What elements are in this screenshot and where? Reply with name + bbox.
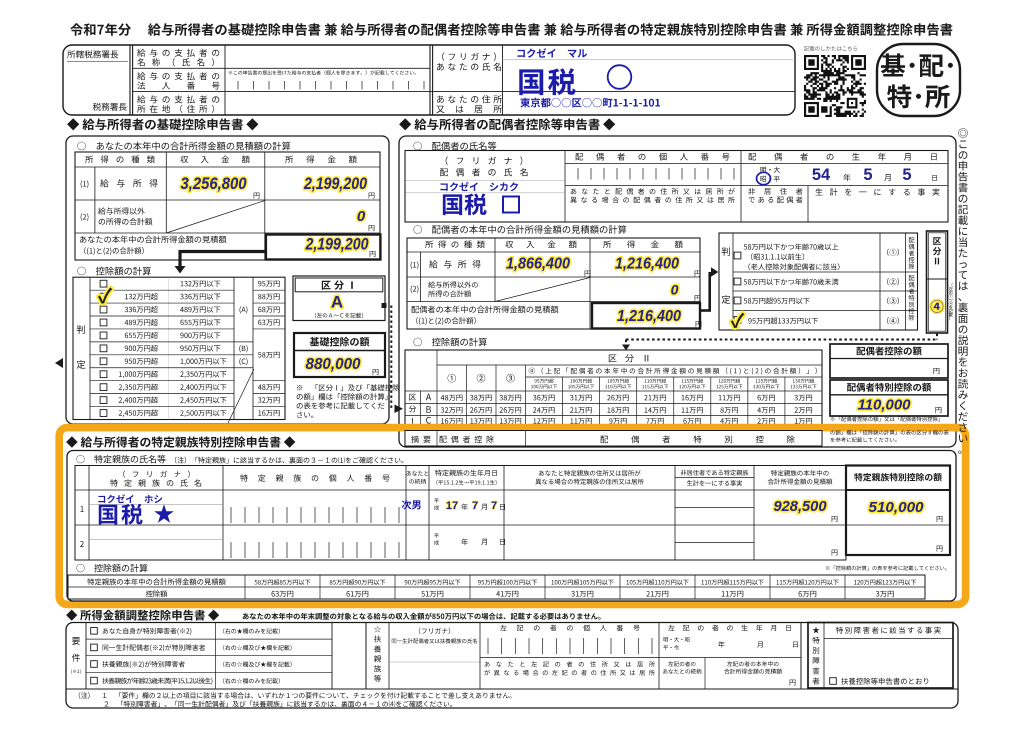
svg-text:54: 54: [812, 166, 831, 184]
svg-text:3,256,800: 3,256,800: [181, 175, 248, 193]
svg-text:0: 0: [357, 208, 366, 225]
svg-text:510,000: 510,000: [869, 499, 925, 516]
svg-text:880,000: 880,000: [306, 356, 361, 373]
svg-text:2,199,200: 2,199,200: [305, 236, 370, 254]
svg-text:1,216,400: 1,216,400: [617, 308, 681, 325]
svg-text:2,199,200: 2,199,200: [303, 175, 368, 193]
svg-text:0: 0: [671, 282, 679, 298]
svg-text:928,500: 928,500: [774, 499, 827, 515]
svg-text:17: 17: [446, 500, 458, 512]
svg-text:110,000: 110,000: [858, 397, 912, 414]
svg-text:5: 5: [902, 166, 911, 184]
svg-text:7: 7: [491, 500, 497, 512]
svg-text:7: 7: [472, 500, 478, 512]
svg-text:1,216,400: 1,216,400: [615, 256, 679, 273]
svg-text:5: 5: [863, 166, 872, 184]
svg-text:1,866,400: 1,866,400: [506, 256, 570, 273]
svg-text:A: A: [331, 293, 343, 312]
